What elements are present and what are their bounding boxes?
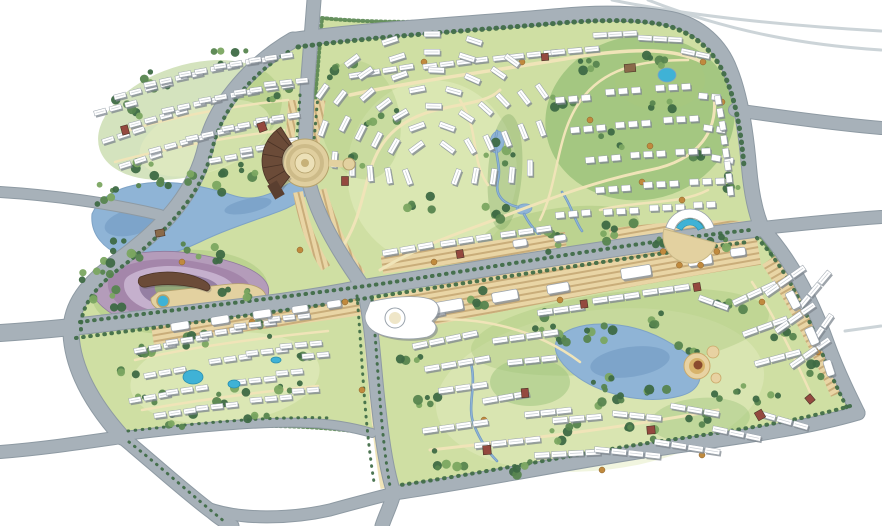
accent-tree (431, 259, 437, 265)
tree (578, 58, 583, 63)
pond (658, 68, 676, 82)
tree (297, 353, 303, 359)
building (714, 95, 721, 105)
swimming-pool (183, 370, 203, 384)
tree (611, 225, 618, 232)
accent-tree (679, 197, 685, 203)
tree (601, 322, 608, 329)
building (688, 148, 697, 154)
building (629, 207, 638, 213)
tree (650, 100, 656, 106)
tree (817, 373, 824, 380)
tree (184, 247, 191, 254)
tree (583, 335, 591, 343)
tree (332, 64, 339, 71)
plaza-tree (698, 262, 704, 268)
tree (685, 415, 693, 423)
tree (243, 48, 248, 53)
building (603, 209, 612, 215)
building (616, 208, 625, 214)
building (655, 85, 664, 91)
building (675, 149, 684, 155)
tree (109, 293, 115, 299)
tree (608, 128, 615, 135)
tree (89, 295, 97, 303)
tree (165, 182, 172, 189)
tree (79, 276, 86, 283)
building (555, 212, 564, 219)
tree (117, 368, 125, 376)
tree (243, 414, 252, 423)
lakeshore-house (155, 229, 165, 237)
tree (196, 254, 202, 260)
building (628, 121, 637, 128)
tree (100, 196, 108, 204)
tree (427, 401, 434, 408)
tree (598, 133, 604, 139)
tree (428, 205, 436, 213)
plaza-tree (676, 262, 682, 268)
tree (549, 428, 554, 433)
building (568, 210, 577, 217)
building (643, 151, 652, 157)
tree (619, 144, 625, 150)
tree (600, 230, 607, 237)
tree (148, 69, 153, 74)
tree (472, 299, 481, 308)
tree (495, 214, 505, 224)
tree (274, 385, 284, 395)
building (596, 124, 605, 131)
building (608, 186, 617, 193)
lake-island-amphitheater-stage (694, 361, 703, 370)
tree (629, 218, 639, 228)
tree (413, 395, 423, 405)
tree (297, 380, 303, 386)
tree (93, 267, 101, 275)
building (668, 84, 677, 90)
tree (112, 186, 119, 193)
tree (647, 55, 653, 61)
building (727, 186, 734, 196)
building (555, 97, 564, 104)
garden-pavilion (624, 64, 636, 73)
tree (179, 424, 185, 430)
building (641, 120, 650, 127)
tree (136, 112, 143, 119)
tree (378, 112, 385, 119)
accent-tree (599, 467, 605, 473)
building (581, 94, 590, 101)
tree (667, 99, 673, 105)
accent-tree (179, 259, 185, 265)
building (726, 173, 733, 183)
tree (110, 248, 116, 254)
tree (608, 375, 614, 381)
tree (480, 301, 489, 310)
building (703, 124, 713, 131)
building (649, 205, 658, 211)
tree (735, 185, 740, 190)
tree (483, 152, 488, 157)
building (630, 152, 639, 158)
building (724, 161, 731, 171)
tree (578, 66, 588, 76)
tree (556, 337, 561, 342)
community-building (456, 249, 464, 258)
accent-tree (297, 247, 303, 253)
building (719, 121, 726, 131)
building (656, 181, 665, 187)
tree (238, 162, 244, 168)
tree (242, 388, 251, 397)
tree (600, 336, 608, 344)
tree (478, 286, 487, 295)
tree (110, 303, 118, 311)
tree (550, 95, 556, 101)
plaza-tree (714, 249, 720, 255)
tree (593, 61, 600, 68)
building (605, 89, 614, 96)
community-building (693, 282, 701, 291)
accent-tree (700, 59, 706, 65)
tree (107, 193, 115, 201)
building (681, 83, 690, 89)
fountain (157, 295, 169, 307)
tree (532, 325, 539, 332)
tree (327, 74, 333, 80)
tree (187, 170, 195, 178)
tree (149, 171, 159, 181)
tree (716, 395, 723, 402)
tree (668, 104, 677, 113)
commercial-building (730, 247, 746, 257)
tree (211, 48, 218, 55)
accent-tree (587, 117, 593, 123)
tree (627, 425, 633, 431)
tree (435, 465, 440, 470)
tree (132, 370, 140, 378)
tree (432, 448, 437, 453)
building (618, 88, 627, 95)
tree (181, 241, 186, 246)
tree (674, 341, 683, 350)
tree (602, 237, 611, 246)
building (643, 182, 652, 188)
plaza-node (343, 158, 355, 170)
tree (366, 120, 372, 126)
building (570, 127, 579, 134)
south-link-road (207, 493, 394, 517)
building (598, 155, 607, 162)
accent-tree (759, 299, 765, 305)
building (689, 179, 698, 185)
tree (184, 178, 192, 186)
tree (148, 162, 153, 167)
building (715, 178, 724, 184)
tree (658, 310, 664, 316)
tree (219, 168, 228, 177)
tree (168, 420, 175, 427)
tree (733, 389, 739, 395)
accent-tree (359, 387, 365, 393)
building (701, 148, 710, 154)
tree (212, 181, 221, 190)
community-building (580, 300, 588, 309)
tree (425, 395, 430, 400)
tree (718, 234, 725, 241)
tree (586, 58, 592, 64)
tree (650, 320, 657, 327)
community-building (521, 388, 529, 398)
tree (591, 380, 596, 385)
tree (359, 163, 365, 169)
tree (554, 437, 561, 444)
tree (527, 459, 533, 465)
building (568, 95, 577, 102)
building (663, 117, 672, 123)
tree (562, 338, 571, 347)
tree (699, 421, 706, 428)
tree (502, 204, 510, 212)
tree (806, 370, 813, 377)
tree (218, 288, 227, 297)
tree (652, 241, 659, 248)
tree (741, 383, 747, 389)
tree (263, 413, 269, 419)
tree (767, 391, 774, 398)
master-plan-canvas (0, 0, 882, 526)
tree (617, 392, 624, 399)
building (615, 122, 624, 129)
accent-tree (557, 297, 563, 303)
building (621, 185, 630, 192)
tree (110, 237, 117, 244)
lake-island-amphitheater-terrace (711, 373, 721, 383)
community-building (483, 445, 492, 455)
tree (503, 161, 508, 166)
accent-tree (647, 143, 653, 149)
context-road (845, 326, 881, 331)
building (702, 178, 711, 184)
building (722, 148, 729, 158)
tree (217, 47, 224, 54)
tree (597, 397, 606, 406)
building (656, 150, 665, 156)
building (595, 187, 604, 194)
tree (267, 334, 272, 339)
tree (513, 465, 521, 473)
tree (722, 243, 731, 252)
tree (100, 269, 105, 274)
tree (545, 249, 551, 255)
tree (95, 201, 101, 207)
roundabout-plaza-center (301, 159, 309, 167)
tree (510, 152, 515, 157)
tree (117, 303, 126, 312)
building (676, 116, 685, 122)
tree (738, 304, 748, 314)
building (611, 154, 620, 161)
community-building (342, 177, 349, 186)
building (698, 93, 707, 100)
tree (106, 270, 114, 278)
building (706, 201, 715, 207)
tree (521, 462, 529, 470)
tree (661, 56, 668, 63)
east-exit-lower (762, 217, 881, 228)
community-building (541, 53, 549, 61)
plaza-tree (660, 249, 666, 255)
tree (812, 360, 820, 368)
building (711, 154, 721, 161)
building (631, 87, 640, 94)
tree (550, 324, 556, 330)
master-plan-stage: Residential community master plan — aeri… (0, 0, 882, 526)
tree (482, 203, 490, 211)
tree (79, 269, 86, 276)
building (675, 204, 684, 210)
tree (211, 243, 219, 251)
community-building (647, 426, 656, 435)
tree (452, 462, 462, 472)
building (669, 180, 678, 186)
tree (753, 396, 760, 403)
tree (662, 385, 671, 394)
tree (216, 392, 221, 397)
accent-tree (342, 299, 348, 305)
tree (396, 355, 405, 364)
tree (158, 177, 165, 184)
tree (252, 170, 259, 177)
tree (127, 249, 136, 258)
building (693, 202, 702, 208)
tree (608, 325, 618, 335)
tree (587, 65, 594, 72)
building (583, 125, 592, 132)
tree (136, 183, 141, 188)
lake-island-amphitheater-terrace (707, 346, 719, 358)
swimming-pool (271, 357, 281, 363)
building (689, 115, 698, 121)
commercial-building (327, 300, 342, 309)
tree (216, 250, 225, 259)
tree (111, 285, 120, 294)
tree (770, 333, 778, 341)
tree (239, 168, 244, 173)
tree (789, 333, 797, 341)
tree (106, 258, 116, 268)
tree (644, 385, 654, 395)
mall-court-center (389, 312, 401, 324)
tree (584, 327, 590, 333)
building (662, 204, 671, 210)
building (585, 157, 594, 164)
tree (274, 92, 281, 99)
building (720, 135, 727, 145)
tree (121, 238, 126, 243)
tree (414, 357, 420, 363)
tree (602, 221, 611, 230)
tree (403, 203, 412, 212)
tree (97, 182, 103, 188)
tree (426, 192, 435, 201)
roundabout-link (329, 163, 343, 164)
tree (442, 460, 451, 469)
building (717, 108, 724, 118)
tree (231, 48, 240, 57)
building (581, 209, 590, 216)
tree (775, 393, 781, 399)
tree (602, 387, 607, 392)
tree (243, 293, 251, 301)
swimming-pool (228, 380, 240, 388)
